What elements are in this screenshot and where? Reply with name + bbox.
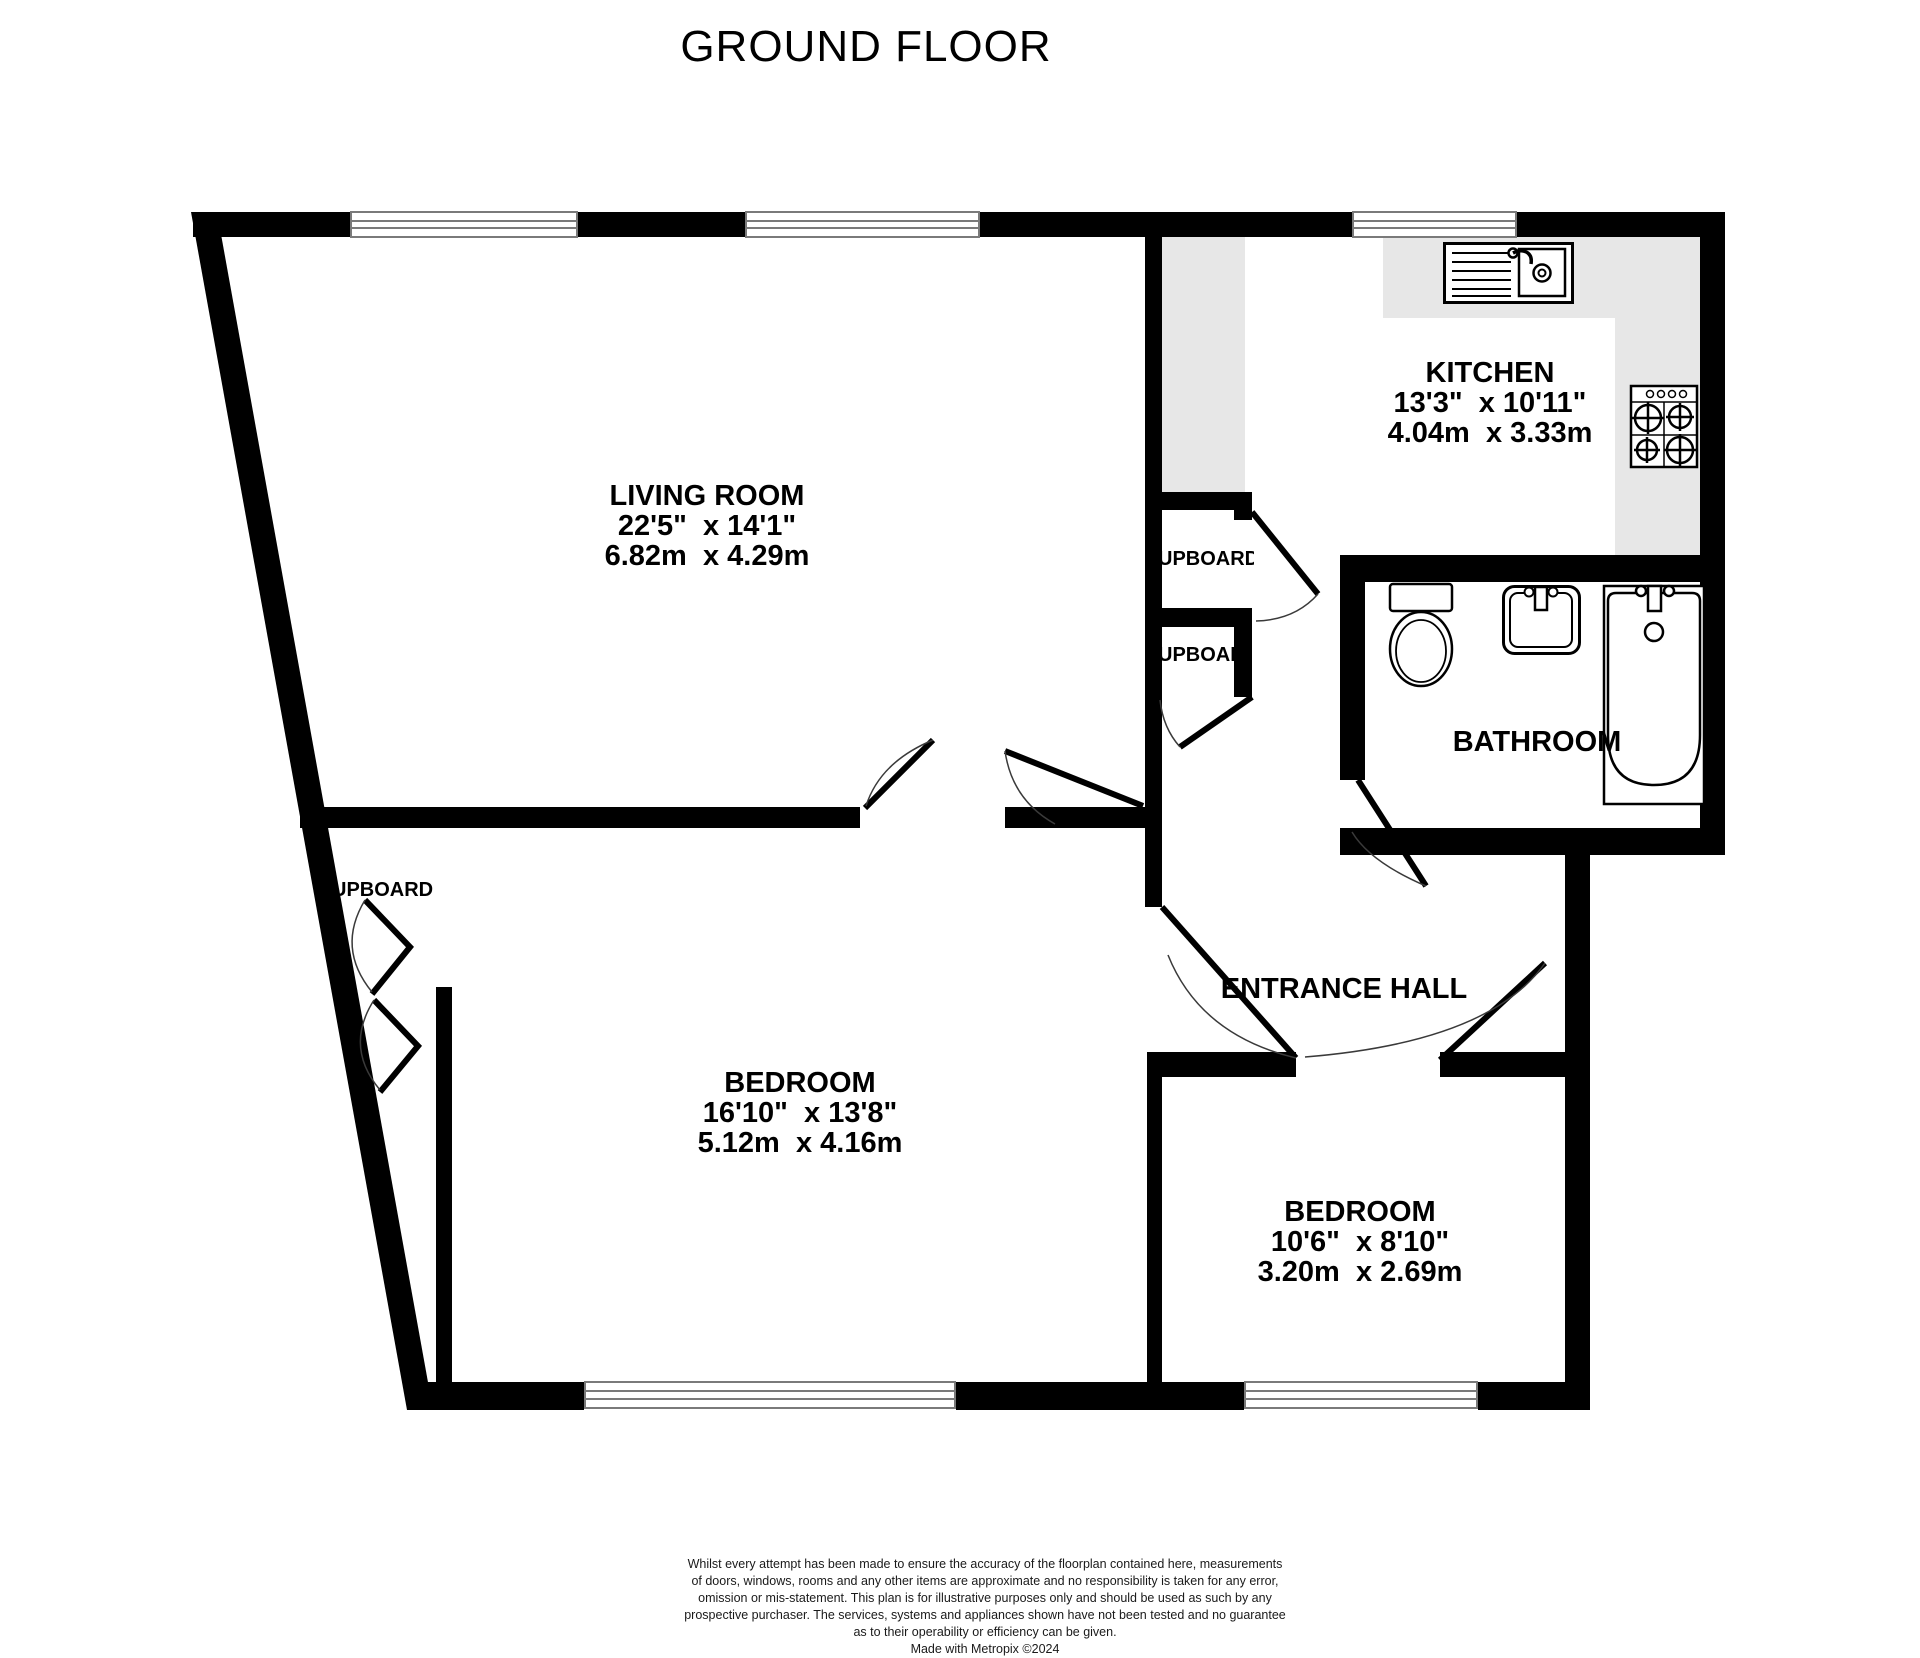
window-symbol xyxy=(584,1381,956,1409)
room-dims-metric: 4.04m x 3.33m xyxy=(1340,418,1640,448)
door-swing-arc xyxy=(360,1000,380,1090)
room-label-entrance-hall: ENTRANCE HALL xyxy=(1194,974,1494,1004)
room-dims-imperial: 22'5" x 14'1" xyxy=(507,511,907,541)
door-swing-arc xyxy=(1256,594,1318,621)
basin-icon xyxy=(1504,587,1580,654)
room-name: BEDROOM xyxy=(1210,1197,1510,1227)
wall xyxy=(1340,555,1365,780)
room-label-bathroom: BATHROOM xyxy=(1387,727,1687,757)
made-with-credit: Made with Metropix ©2024 xyxy=(560,1641,1410,1658)
cupboard-label: UPBOAR xyxy=(1158,645,1248,665)
door-swing-arc xyxy=(1168,955,1296,1058)
window-symbol xyxy=(745,211,980,238)
window-symbol xyxy=(350,211,578,238)
wall xyxy=(1147,1052,1296,1077)
wall xyxy=(1147,1052,1162,1410)
door-swing-arc xyxy=(352,900,372,992)
disclaimer-line: of doors, windows, rooms and any other i… xyxy=(560,1573,1410,1590)
door-leaf xyxy=(1180,697,1252,747)
room-dims-metric: 6.82m x 4.29m xyxy=(507,541,907,571)
room-dims-metric: 5.12m x 4.16m xyxy=(600,1128,1000,1158)
door-leaf xyxy=(1005,751,1143,806)
wall xyxy=(1340,555,1700,582)
wall xyxy=(1145,608,1252,627)
room-name: BATHROOM xyxy=(1387,727,1687,757)
room-label-kitchen: KITCHEN 13'3" x 10'11" 4.04m x 3.33m xyxy=(1340,358,1640,448)
room-name: BEDROOM xyxy=(600,1068,1000,1098)
door-leaf xyxy=(865,740,933,808)
wall xyxy=(407,1382,584,1410)
wall xyxy=(1565,855,1590,1410)
wall xyxy=(300,807,860,828)
floorplan-page: { "title": "GROUND FLOOR", "colors": { "… xyxy=(0,0,1920,1645)
wall xyxy=(1005,807,1148,828)
bifold-door-icon xyxy=(374,1000,418,1092)
room-label-living-room: LIVING ROOM 22'5" x 14'1" 6.82m x 4.29m xyxy=(507,481,907,571)
room-dims-metric: 3.20m x 2.69m xyxy=(1210,1257,1510,1287)
room-name: KITCHEN xyxy=(1340,358,1640,388)
wall xyxy=(1234,505,1252,520)
room-name: ENTRANCE HALL xyxy=(1194,974,1494,1004)
cupboard-label: UPBOARD xyxy=(332,880,462,900)
wall xyxy=(1340,828,1725,855)
wall xyxy=(436,987,452,1387)
bifold-door-icon xyxy=(365,900,410,994)
wall xyxy=(1700,212,1725,855)
door-swing-arc xyxy=(866,740,933,806)
kitchen-counter xyxy=(1162,237,1245,492)
room-label-bedroom-2: BEDROOM 10'6" x 8'10" 3.20m x 2.69m xyxy=(1210,1197,1510,1287)
room-label-bedroom-1: BEDROOM 16'10" x 13'8" 5.12m x 4.16m xyxy=(600,1068,1000,1158)
wall xyxy=(956,1382,1244,1410)
page-title: GROUND FLOOR xyxy=(466,22,1266,72)
window-symbol xyxy=(1244,1381,1478,1409)
door-leaf xyxy=(1252,512,1318,594)
room-dims-imperial: 16'10" x 13'8" xyxy=(600,1098,1000,1128)
cupboard-label: UPBOARD xyxy=(1158,549,1254,569)
room-name: LIVING ROOM xyxy=(507,481,907,511)
toilet-icon xyxy=(1390,584,1452,686)
door-swing-arc xyxy=(1160,700,1180,747)
wall xyxy=(1478,1382,1590,1410)
bathtub-icon xyxy=(1604,586,1704,804)
disclaimer-line: omission or mis-statement. This plan is … xyxy=(560,1590,1410,1607)
disclaimer-line: Whilst every attempt has been made to en… xyxy=(560,1556,1410,1573)
room-dims-imperial: 13'3" x 10'11" xyxy=(1340,388,1640,418)
room-dims-imperial: 10'6" x 8'10" xyxy=(1210,1227,1510,1257)
disclaimer: Whilst every attempt has been made to en… xyxy=(560,1556,1410,1658)
kitchen-counter xyxy=(1383,237,1700,318)
disclaimer-line: as to their operability or efficiency ca… xyxy=(560,1624,1410,1641)
disclaimer-line: prospective purchaser. The services, sys… xyxy=(560,1607,1410,1624)
window-symbol xyxy=(1352,211,1517,238)
